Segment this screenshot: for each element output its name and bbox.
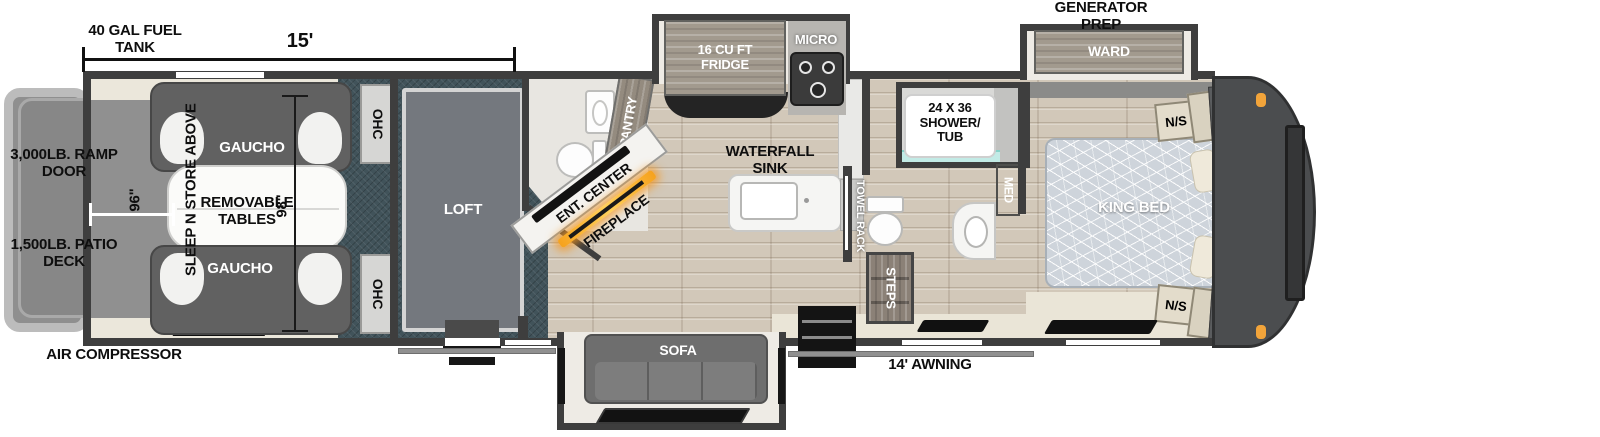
med-cabinet: MED <box>996 164 1020 216</box>
patio-deck-label: 1,500LB. PATIO DECK <box>8 237 120 271</box>
sofa-rug <box>595 408 750 424</box>
bedroom-slide-shadow <box>1026 82 1214 98</box>
rear-bath-sink-basin <box>592 100 608 126</box>
shower-label-line1: 24 X 36 <box>910 101 990 116</box>
garage-awning-rail <box>398 348 556 354</box>
ramp-door-label: 3,000LB. RAMP DOOR <box>8 147 120 181</box>
rv-floorplan: GAUCHO REMOVABLE TABLES GAUCHO SLEEP N S… <box>0 0 1600 437</box>
ohc-top-label: OHC <box>369 109 385 140</box>
bath-bedroom-wall <box>1018 82 1026 214</box>
dim-96-label: 96" <box>128 188 145 211</box>
fridge-label: 16 CU FT FRIDGE <box>680 43 770 72</box>
main-bath-toilet-tank <box>866 196 904 213</box>
micro-label: MICRO <box>780 33 852 48</box>
loft-platform: LOFT <box>402 88 524 332</box>
bedroom-steps: STEPS <box>866 252 914 324</box>
ohc-bottom-label: OHC <box>369 279 385 310</box>
rear-bath-wall <box>522 79 529 211</box>
entry-rug <box>917 320 990 332</box>
fuel-tank-label: 40 GAL FUEL TANK <box>80 23 190 57</box>
sofa-slide-window-right <box>778 348 785 404</box>
burner-3 <box>810 82 826 98</box>
fridge: 16 CU FT FRIDGE <box>664 20 786 96</box>
sofa-label: SOFA <box>628 343 728 359</box>
sofa-seat <box>595 362 757 400</box>
garage-top-window <box>176 72 264 78</box>
shower-label-line3: TUB <box>910 130 990 145</box>
garage-entry-landing <box>445 320 499 338</box>
sofa-slide-stub-wall <box>518 316 528 338</box>
shower-label: 24 X 36 SHOWER/ TUB <box>910 101 990 145</box>
dim-98-tick-bottom <box>282 330 308 332</box>
dim-96-line <box>90 213 174 216</box>
marker-light-top <box>1256 93 1266 107</box>
dim-96-tick-right <box>172 203 175 226</box>
dim-15ft-tick-right <box>513 47 516 72</box>
med-cabinet-label: MED <box>1001 177 1014 203</box>
garage-partition-wall <box>390 79 398 338</box>
sleep-n-store-label: SLEEP N STORE ABOVE <box>184 150 201 276</box>
sofa: SOFA <box>584 334 768 404</box>
front-cap <box>1212 76 1316 348</box>
vanity-sink <box>964 216 988 248</box>
towel-rack-label: TOWEL RACK <box>854 180 866 252</box>
wardrobe-slide-label: WARD <box>1088 44 1130 60</box>
steps-label: STEPS <box>883 267 898 309</box>
dim-96-tick-left <box>89 203 92 226</box>
gaucho-top-sofa <box>150 82 352 172</box>
gaucho-bottom-sofa <box>150 245 352 335</box>
island-faucet <box>804 198 809 203</box>
air-compressor-label: AIR COMPRESSOR <box>44 347 184 364</box>
main-entry-step-line1 <box>802 320 852 323</box>
gaucho-bottom-cushion-right <box>298 253 342 305</box>
burner-1 <box>799 61 812 74</box>
cooktop <box>790 52 844 106</box>
loft-label: LOFT <box>444 202 482 219</box>
main-entry-step-line2 <box>802 336 852 339</box>
front-cap-window <box>1285 125 1305 301</box>
ohc-bottom-cabinet: OHC <box>360 254 394 334</box>
dim-98-tick-top <box>282 95 308 97</box>
nightstand-bottom-label: N/S <box>1164 296 1187 313</box>
marker-light-bottom <box>1256 325 1266 339</box>
burner-2 <box>822 61 835 74</box>
bedroom-rug <box>1044 320 1158 334</box>
island-sink <box>740 182 798 220</box>
vanity-counter <box>952 202 996 260</box>
king-bed-label: KING BED <box>1074 200 1194 217</box>
dim-98-label: 98" <box>275 194 292 217</box>
dim-15ft-label: 15' <box>270 30 330 52</box>
kitchen-island <box>728 174 842 232</box>
nightstand-top-label: N/S <box>1164 112 1187 129</box>
kitchen-bath-wall <box>862 79 870 175</box>
main-bath-toilet-bowl <box>867 212 903 246</box>
garage-bottom-window <box>505 340 551 345</box>
towel-rack-bar <box>845 176 848 250</box>
entry-window <box>902 340 982 345</box>
main-entry-steps <box>798 306 856 368</box>
dim-15ft-line <box>83 58 515 61</box>
generator-prep-label: GENERATOR PREP <box>1042 0 1160 34</box>
dim-98-line <box>294 96 296 332</box>
waterfall-sink-label: WATERFALL SINK <box>712 144 828 178</box>
sofa-slide-window-left <box>558 348 565 404</box>
shower-label-line2: SHOWER/ <box>910 116 990 131</box>
wardrobe-slide-cabinet: WARD <box>1034 30 1184 74</box>
shower-pan: 24 X 36 SHOWER/ TUB <box>904 94 996 158</box>
gaucho-bottom-label: GAUCHO <box>185 261 295 278</box>
garage-entry-step2 <box>449 357 495 365</box>
awning-label: 14' AWNING <box>860 357 1000 374</box>
ohc-top-cabinet: OHC <box>360 84 394 164</box>
bottom-wall-seg1 <box>83 338 445 346</box>
bedroom-window <box>1066 340 1160 345</box>
gaucho-top-label: GAUCHO <box>197 140 307 157</box>
